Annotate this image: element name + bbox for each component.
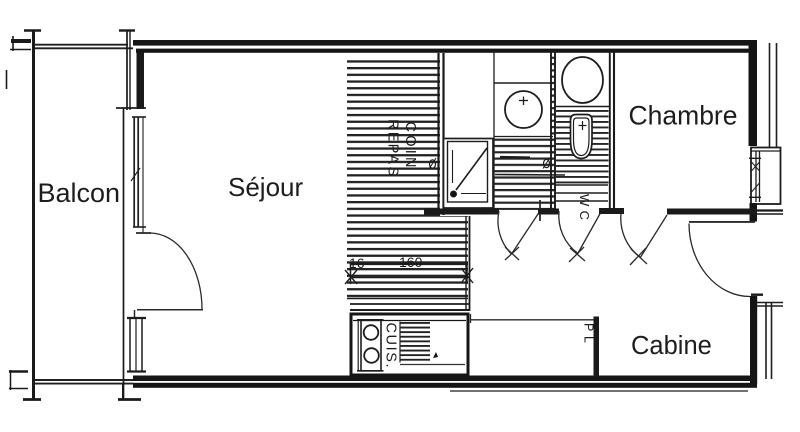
svg-text:Balcon: Balcon <box>38 178 121 208</box>
svg-text:Cabine: Cabine <box>631 332 712 360</box>
svg-text:16: 16 <box>349 255 365 271</box>
svg-text:Séjour: Séjour <box>228 172 303 202</box>
svg-text:REPAS: REPAS <box>385 119 401 176</box>
svg-text:160: 160 <box>399 254 423 270</box>
svg-text:Chambre: Chambre <box>629 101 738 131</box>
svg-text:CUIS.: CUIS. <box>383 323 399 368</box>
svg-text:COIN: COIN <box>402 122 418 168</box>
